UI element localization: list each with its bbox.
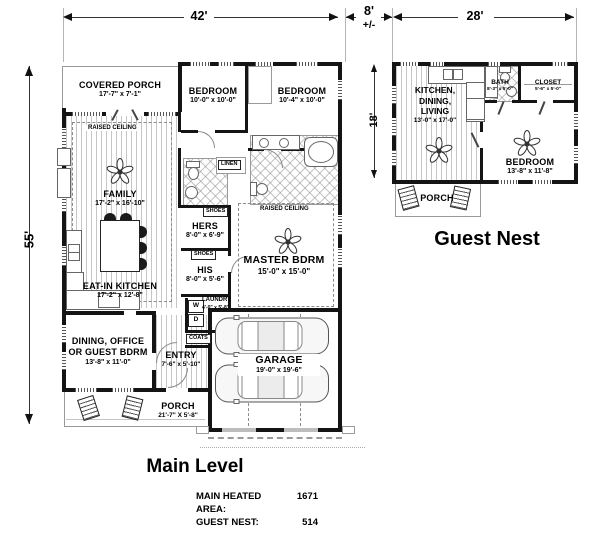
covered-porch-size: 17'-7" x 7'-1" — [70, 91, 170, 100]
covered-porch-label: COVERED PORCH 17'-7" x 7'-1" — [70, 80, 170, 100]
master-label: MASTER BDRM 15'-0" x 15'-0" — [234, 254, 334, 277]
guest-nest-title: Guest Nest — [412, 228, 562, 251]
wall — [512, 100, 537, 103]
dining-name-2: OR GUEST BDRM — [64, 347, 152, 358]
his-label: HIS 8'-0" x 5'-6" — [181, 265, 229, 285]
guest-bedroom-name: BEDROOM — [496, 157, 564, 168]
kitchen-size: 17'-2" x 12'-8" — [72, 292, 168, 301]
guest-porch-label: PORCH — [417, 193, 457, 204]
garage-name: GARAGE — [238, 354, 320, 367]
window — [338, 248, 342, 268]
sink — [259, 138, 269, 148]
guest-kdl-size: 13'-0" x 17'-0" — [398, 117, 472, 125]
linen-label: LINEN — [218, 160, 241, 170]
window — [498, 180, 518, 184]
family-label: FAMILY 17'-2" x 16'-10" — [84, 189, 156, 209]
his-size: 8'-0" x 5'-6" — [181, 276, 229, 285]
guest-closet-name: CLOSET — [523, 79, 573, 87]
guest-closet-label: CLOSET 5'-6" x 5'-0" — [523, 79, 573, 93]
bedroom1-size: 10'-0" x 10'-0" — [181, 97, 245, 106]
arrow-left-icon — [346, 13, 354, 21]
main-level-title: Main Level — [123, 456, 267, 478]
guest-nest-area-value: 514 — [284, 517, 318, 530]
window — [552, 62, 568, 66]
window — [218, 62, 234, 66]
main-heated-area-label: MAIN HEATED AREA: — [196, 491, 284, 517]
garage-door — [222, 428, 256, 432]
window — [574, 146, 578, 164]
main-porch-name: PORCH — [148, 401, 208, 412]
toilet — [188, 167, 199, 180]
media-niche — [57, 168, 71, 198]
ceiling-fan-icon — [106, 158, 134, 186]
arrow-up-icon — [25, 66, 33, 76]
door-gap — [178, 132, 181, 148]
sink — [443, 69, 453, 80]
bedroom2-label: BEDROOM 10'-4" x 10'-0" — [268, 86, 336, 106]
window — [72, 112, 102, 116]
car-top-view — [214, 315, 330, 357]
wall — [178, 112, 181, 208]
entry-size: 7'-6" x 5'-10" — [156, 361, 206, 369]
dimension-line — [396, 17, 458, 18]
hers-size: 8'-0" x 6'-9" — [181, 232, 229, 241]
stool — [120, 213, 132, 220]
wall — [553, 100, 576, 103]
entry-name: ENTRY — [156, 350, 206, 361]
family-size: 17'-2" x 16'-10" — [84, 200, 156, 209]
hers-name: HERS — [181, 221, 229, 232]
coats-label: COATS — [186, 334, 211, 344]
wall — [208, 308, 212, 432]
arrow-left-icon — [393, 13, 402, 21]
summary-row: MAIN HEATED AREA: 1671 — [196, 491, 318, 517]
fireplace — [57, 148, 71, 166]
guest-bedroom-label: BEDROOM 13'-8" x 11'-8" — [496, 157, 564, 177]
extension-line — [576, 8, 577, 62]
shoes-label: SHOES — [203, 207, 228, 217]
stoop — [196, 426, 209, 434]
arrow-right-icon — [329, 13, 338, 21]
window — [574, 112, 578, 130]
kitchen-name: EAT-IN KITCHEN — [72, 281, 168, 292]
garage-label: GARAGE 19'-0" x 19'-6" — [238, 354, 320, 376]
sink — [453, 69, 463, 80]
driveway-dashes — [208, 437, 342, 439]
raised-ceiling-label: RAISED CEILING — [86, 125, 139, 131]
dim-8: 8' — [357, 4, 381, 18]
covered-porch-name: COVERED PORCH — [70, 80, 170, 91]
arrow-down-icon — [25, 414, 33, 424]
dining-size: 13'-8" x 11'-0" — [64, 359, 152, 368]
guest-porch-name: PORCH — [417, 193, 457, 204]
ceiling-fan-icon — [513, 130, 541, 158]
master-name: MASTER BDRM — [234, 254, 334, 267]
bedroom2-name: BEDROOM — [268, 86, 336, 97]
dimension-line — [66, 17, 184, 18]
sink — [185, 186, 198, 199]
his-name: HIS — [181, 265, 229, 276]
floor-plan-canvas: RAISED CEILING RAISED CEILING W D — [0, 0, 600, 533]
dim-28: 28' — [458, 9, 492, 23]
kitchen-label: EAT-IN KITCHEN 17'-2" x 12'-8" — [72, 281, 168, 301]
bedroom2-size: 10'-4" x 10'-0" — [268, 97, 336, 106]
arrow-right-icon — [384, 13, 392, 21]
guest-bath-label: BATH 8'-3" x 5'-0" — [482, 79, 518, 93]
main-porch-label: PORCH 21'-7" X 5'-8" — [148, 401, 208, 420]
window — [338, 215, 342, 235]
arrow-right-icon — [565, 13, 574, 21]
window — [392, 150, 396, 166]
tub-basin — [308, 141, 334, 163]
window — [62, 128, 66, 148]
arrow-down-icon — [371, 170, 377, 178]
front-door-gap — [166, 388, 188, 392]
main-porch-size: 21'-7" X 5'-8" — [148, 412, 208, 420]
dim-55: 55' — [22, 226, 37, 254]
window — [392, 86, 396, 104]
dimension-line — [494, 17, 574, 18]
window — [62, 196, 66, 212]
raised-ceiling-label: RAISED CEILING — [258, 206, 311, 212]
guest-bath-size: 8'-3" x 5'-0" — [482, 87, 518, 93]
garage-size: 19'-0" x 19'-6" — [238, 367, 320, 376]
toilet — [256, 183, 268, 195]
laundry-name: LAUNDRY — [202, 297, 248, 305]
window — [190, 62, 210, 66]
sink — [279, 138, 289, 148]
window — [112, 388, 134, 392]
french-door-gap — [106, 112, 144, 116]
area-summary: MAIN HEATED AREA: 1671 GUEST NEST: 514 — [196, 491, 318, 529]
ceiling-fan-icon — [274, 228, 302, 256]
door-panel — [538, 101, 545, 115]
window — [148, 112, 176, 116]
stoop — [342, 426, 355, 434]
window — [296, 62, 318, 66]
summary-row: GUEST NEST: 514 — [196, 517, 318, 530]
door-arc — [198, 131, 215, 148]
door-panel — [497, 101, 504, 115]
wall — [480, 148, 483, 182]
arrow-left-icon — [63, 13, 72, 21]
guest-kdl-label: KITCHEN, DINING, LIVING 13'-0" x 17'-0" — [398, 85, 472, 125]
window — [392, 118, 396, 136]
dryer-box: D — [188, 314, 204, 327]
dim-18: 18' — [368, 106, 380, 134]
shoes-label: SHOES — [191, 250, 216, 260]
dining-label: DINING, OFFICE OR GUEST BDRM 13'-8" x 11… — [64, 336, 152, 367]
laundry-size: 4'-0" x 5'-8" — [202, 305, 248, 311]
guest-nest-area-label: GUEST NEST: — [196, 517, 284, 530]
bedroom1-label: BEDROOM 10'-0" x 10'-0" — [181, 86, 245, 106]
garage-door — [284, 428, 318, 432]
dimension-line — [214, 17, 338, 18]
wall — [483, 100, 497, 103]
window — [532, 180, 552, 184]
sink — [68, 252, 80, 261]
driveway-dots — [200, 447, 365, 448]
window — [75, 388, 97, 392]
entry-label: ENTRY 7'-6" x 5'-10" — [156, 350, 206, 369]
wall — [518, 62, 521, 102]
dining-name-1: DINING, OFFICE — [64, 336, 152, 347]
kitchen-island — [100, 220, 140, 272]
guest-bedroom-size: 13'-8" x 11'-8" — [496, 168, 564, 177]
bedroom1-name: BEDROOM — [181, 86, 245, 97]
wall — [338, 62, 342, 432]
window — [338, 80, 342, 100]
family-name: FAMILY — [84, 189, 156, 200]
dim-42: 42' — [184, 9, 214, 23]
wall — [152, 311, 156, 353]
wall — [152, 370, 156, 392]
laundry-label: LAUNDRY 4'-0" x 5'-8" — [202, 297, 248, 311]
hers-label: HERS 8'-0" x 6'-9" — [181, 221, 229, 241]
stool — [104, 213, 116, 220]
wall — [62, 311, 124, 315]
guest-kdl-name-3: LIVING — [398, 106, 472, 117]
dim-plus-minus: +/- — [355, 19, 383, 31]
guest-bath-name: BATH — [482, 79, 518, 87]
guest-closet-size: 5'-6" x 5'-0" — [523, 87, 573, 93]
raised-ceiling-box — [72, 122, 172, 302]
guest-kdl-name-1: KITCHEN, — [398, 85, 472, 96]
arrow-up-icon — [371, 64, 377, 72]
guest-kdl-name-2: DINING, — [398, 96, 472, 107]
ceiling-fan-icon — [425, 137, 453, 165]
master-size: 15'-0" x 15'-0" — [234, 267, 334, 277]
wall — [185, 345, 208, 348]
main-heated-area-value: 1671 — [284, 491, 318, 517]
window — [400, 62, 418, 66]
